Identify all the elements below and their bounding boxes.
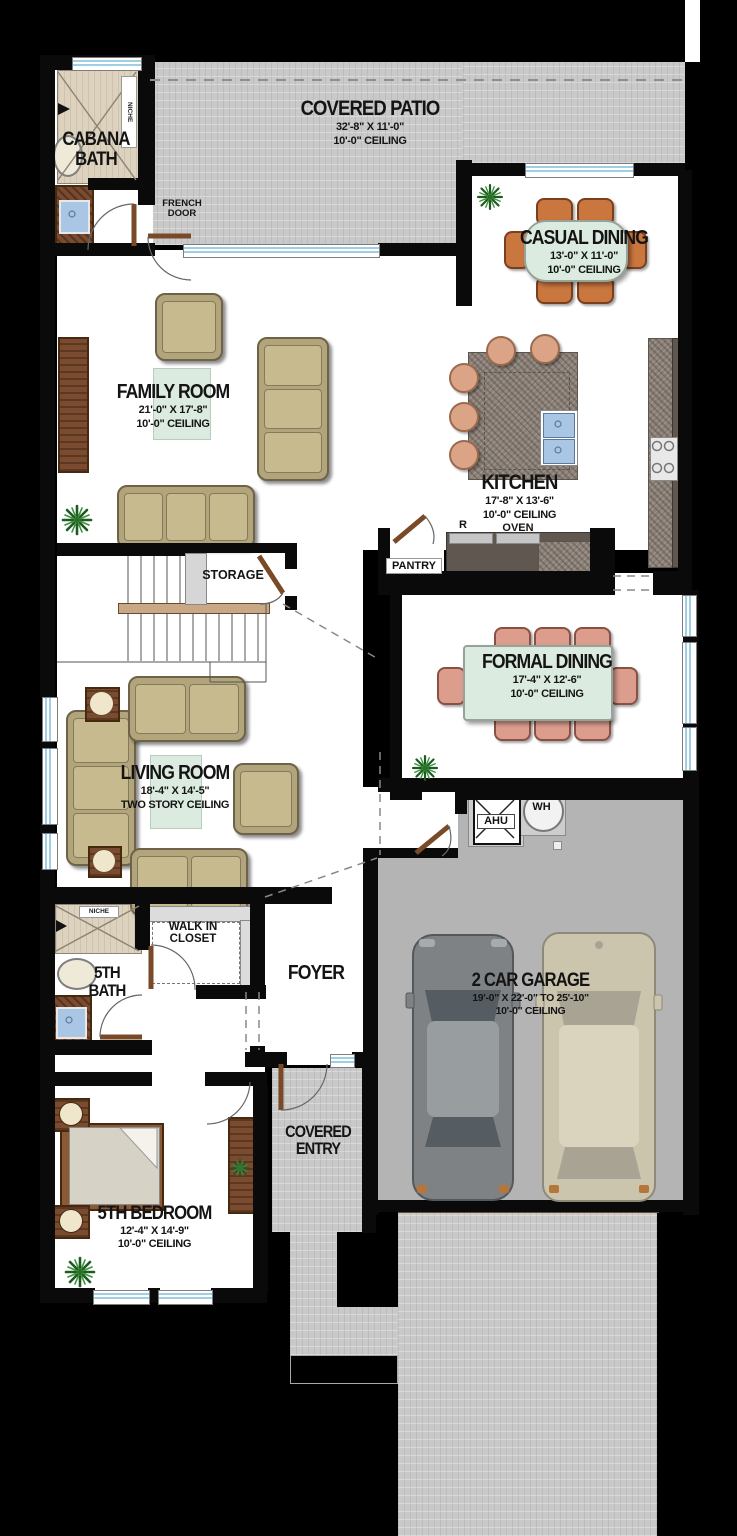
wall (378, 243, 466, 256)
room-label-family-room: FAMILY ROOM 21'-0" X 17'-8" 10'-0" CEILI… (103, 382, 243, 430)
window (93, 1290, 150, 1305)
room-label-fifth-bedroom: 5TH BEDROOM 12'-4" X 14'-9" 10'-0" CEILI… (82, 1204, 227, 1251)
family-sofa-right (257, 337, 329, 481)
window (42, 748, 58, 825)
wall (88, 178, 140, 190)
window (682, 595, 697, 637)
room-label-garage: 2 CAR GARAGE 19'-0" X 22'-0" TO 25'-10" … (438, 971, 623, 1017)
wall (205, 1072, 267, 1086)
window (183, 244, 380, 258)
wall (253, 1086, 268, 1292)
fifth-bath-niche: NICHE (79, 906, 119, 918)
window (158, 1290, 213, 1305)
bar-stool (449, 440, 479, 470)
wall (678, 170, 692, 595)
media-console (58, 337, 89, 473)
wall (40, 243, 148, 256)
label-fridge: R (455, 520, 471, 532)
garage-alcove-floor (378, 792, 456, 854)
wall (40, 1288, 95, 1303)
room-label-formal-dining: FORMAL DINING 17'-4" X 12'-6" 10'-0" CEI… (462, 652, 632, 700)
wall (40, 1072, 152, 1086)
sidelite-window (330, 1054, 355, 1068)
annotation-french-door: FRENCH DOOR (150, 199, 214, 219)
room-label-storage: STORAGE (192, 569, 274, 582)
bar-stool (530, 334, 560, 364)
side-table-top (89, 691, 114, 716)
room-label-pantry: PANTRY (386, 558, 442, 574)
window (42, 833, 58, 870)
wall (196, 985, 266, 999)
kitchen-sink-basin-2 (543, 439, 575, 464)
cabana-sink (59, 200, 90, 234)
window (682, 727, 697, 771)
wall (456, 160, 472, 306)
chimney-notch (685, 0, 700, 62)
room-label-covered-patio: COVERED PATIO 32'-8" X 11'-0" 10'-0" CEI… (240, 98, 500, 147)
cooktop (650, 437, 678, 481)
wall (40, 868, 55, 1288)
wall (378, 1200, 683, 1212)
wall (653, 571, 683, 595)
walkway-step (290, 1355, 398, 1384)
bar-stool (449, 363, 479, 393)
wall (183, 543, 295, 553)
wall (285, 543, 297, 569)
side-table-top (92, 849, 116, 873)
room-label-fifth-bath: 5TH BATH (78, 964, 136, 1000)
room-label-kitchen: KITCHEN 17'-8" X 13'-6" 10'-0" CEILING (452, 472, 587, 521)
wall (211, 1288, 267, 1303)
kitchen-sink-basin-1 (543, 413, 575, 438)
closet-rod-top (145, 906, 255, 922)
window (72, 57, 142, 71)
room-label-cabana-bath: CABANA BATH (51, 130, 141, 170)
wall (135, 904, 150, 950)
wall (628, 163, 685, 176)
kitchen-corridor-floor (613, 573, 655, 595)
room-label-walk-in-closet: WALK IN CLOSET (152, 921, 234, 945)
wall (378, 778, 683, 792)
wall (362, 1058, 376, 1233)
walkway-connector (290, 1307, 398, 1355)
wall (455, 792, 467, 814)
wall (390, 595, 402, 787)
label-oven: OVEN (496, 523, 540, 535)
dresser (228, 1117, 256, 1214)
driveway (398, 1212, 657, 1536)
nightstand-lamp (59, 1102, 83, 1126)
refrigerator (449, 533, 493, 544)
label-wh: WH (523, 802, 560, 814)
room-label-foyer: FOYER (280, 963, 352, 984)
counter-bottom-granite (538, 541, 594, 575)
wall (285, 596, 297, 610)
wall (57, 543, 185, 556)
bed-mattress (69, 1127, 160, 1205)
room-label-covered-entry: COVERED ENTRY (272, 1124, 364, 1159)
wall (378, 571, 615, 595)
bar-stool (449, 402, 479, 432)
wall (40, 887, 332, 904)
sliding-door (525, 163, 634, 178)
family-armchair (155, 293, 223, 361)
wall (40, 1040, 152, 1055)
label-ahu: AHU (477, 814, 515, 829)
floor-drain (553, 841, 562, 850)
living-loveseat-top (128, 676, 246, 742)
family-sofa-bottom (117, 485, 255, 549)
nightstand-lamp (59, 1209, 83, 1233)
wall (590, 528, 615, 573)
wall (463, 163, 527, 176)
fifth-bath-sink (56, 1007, 87, 1039)
wall (250, 904, 265, 996)
room-label-casual-dining: CASUAL DINING 13'-0" X 11'-0" 10'-0" CEI… (498, 228, 670, 276)
wall (245, 1052, 287, 1067)
floor-plan: NICHE NICHE (0, 0, 737, 1536)
window (682, 642, 697, 724)
wall-oven (496, 533, 540, 544)
window (42, 697, 58, 742)
room-label-living-room: LIVING ROOM 18'-4" X 14'-5" TWO STORY CE… (100, 763, 250, 811)
bar-stool (486, 336, 516, 366)
